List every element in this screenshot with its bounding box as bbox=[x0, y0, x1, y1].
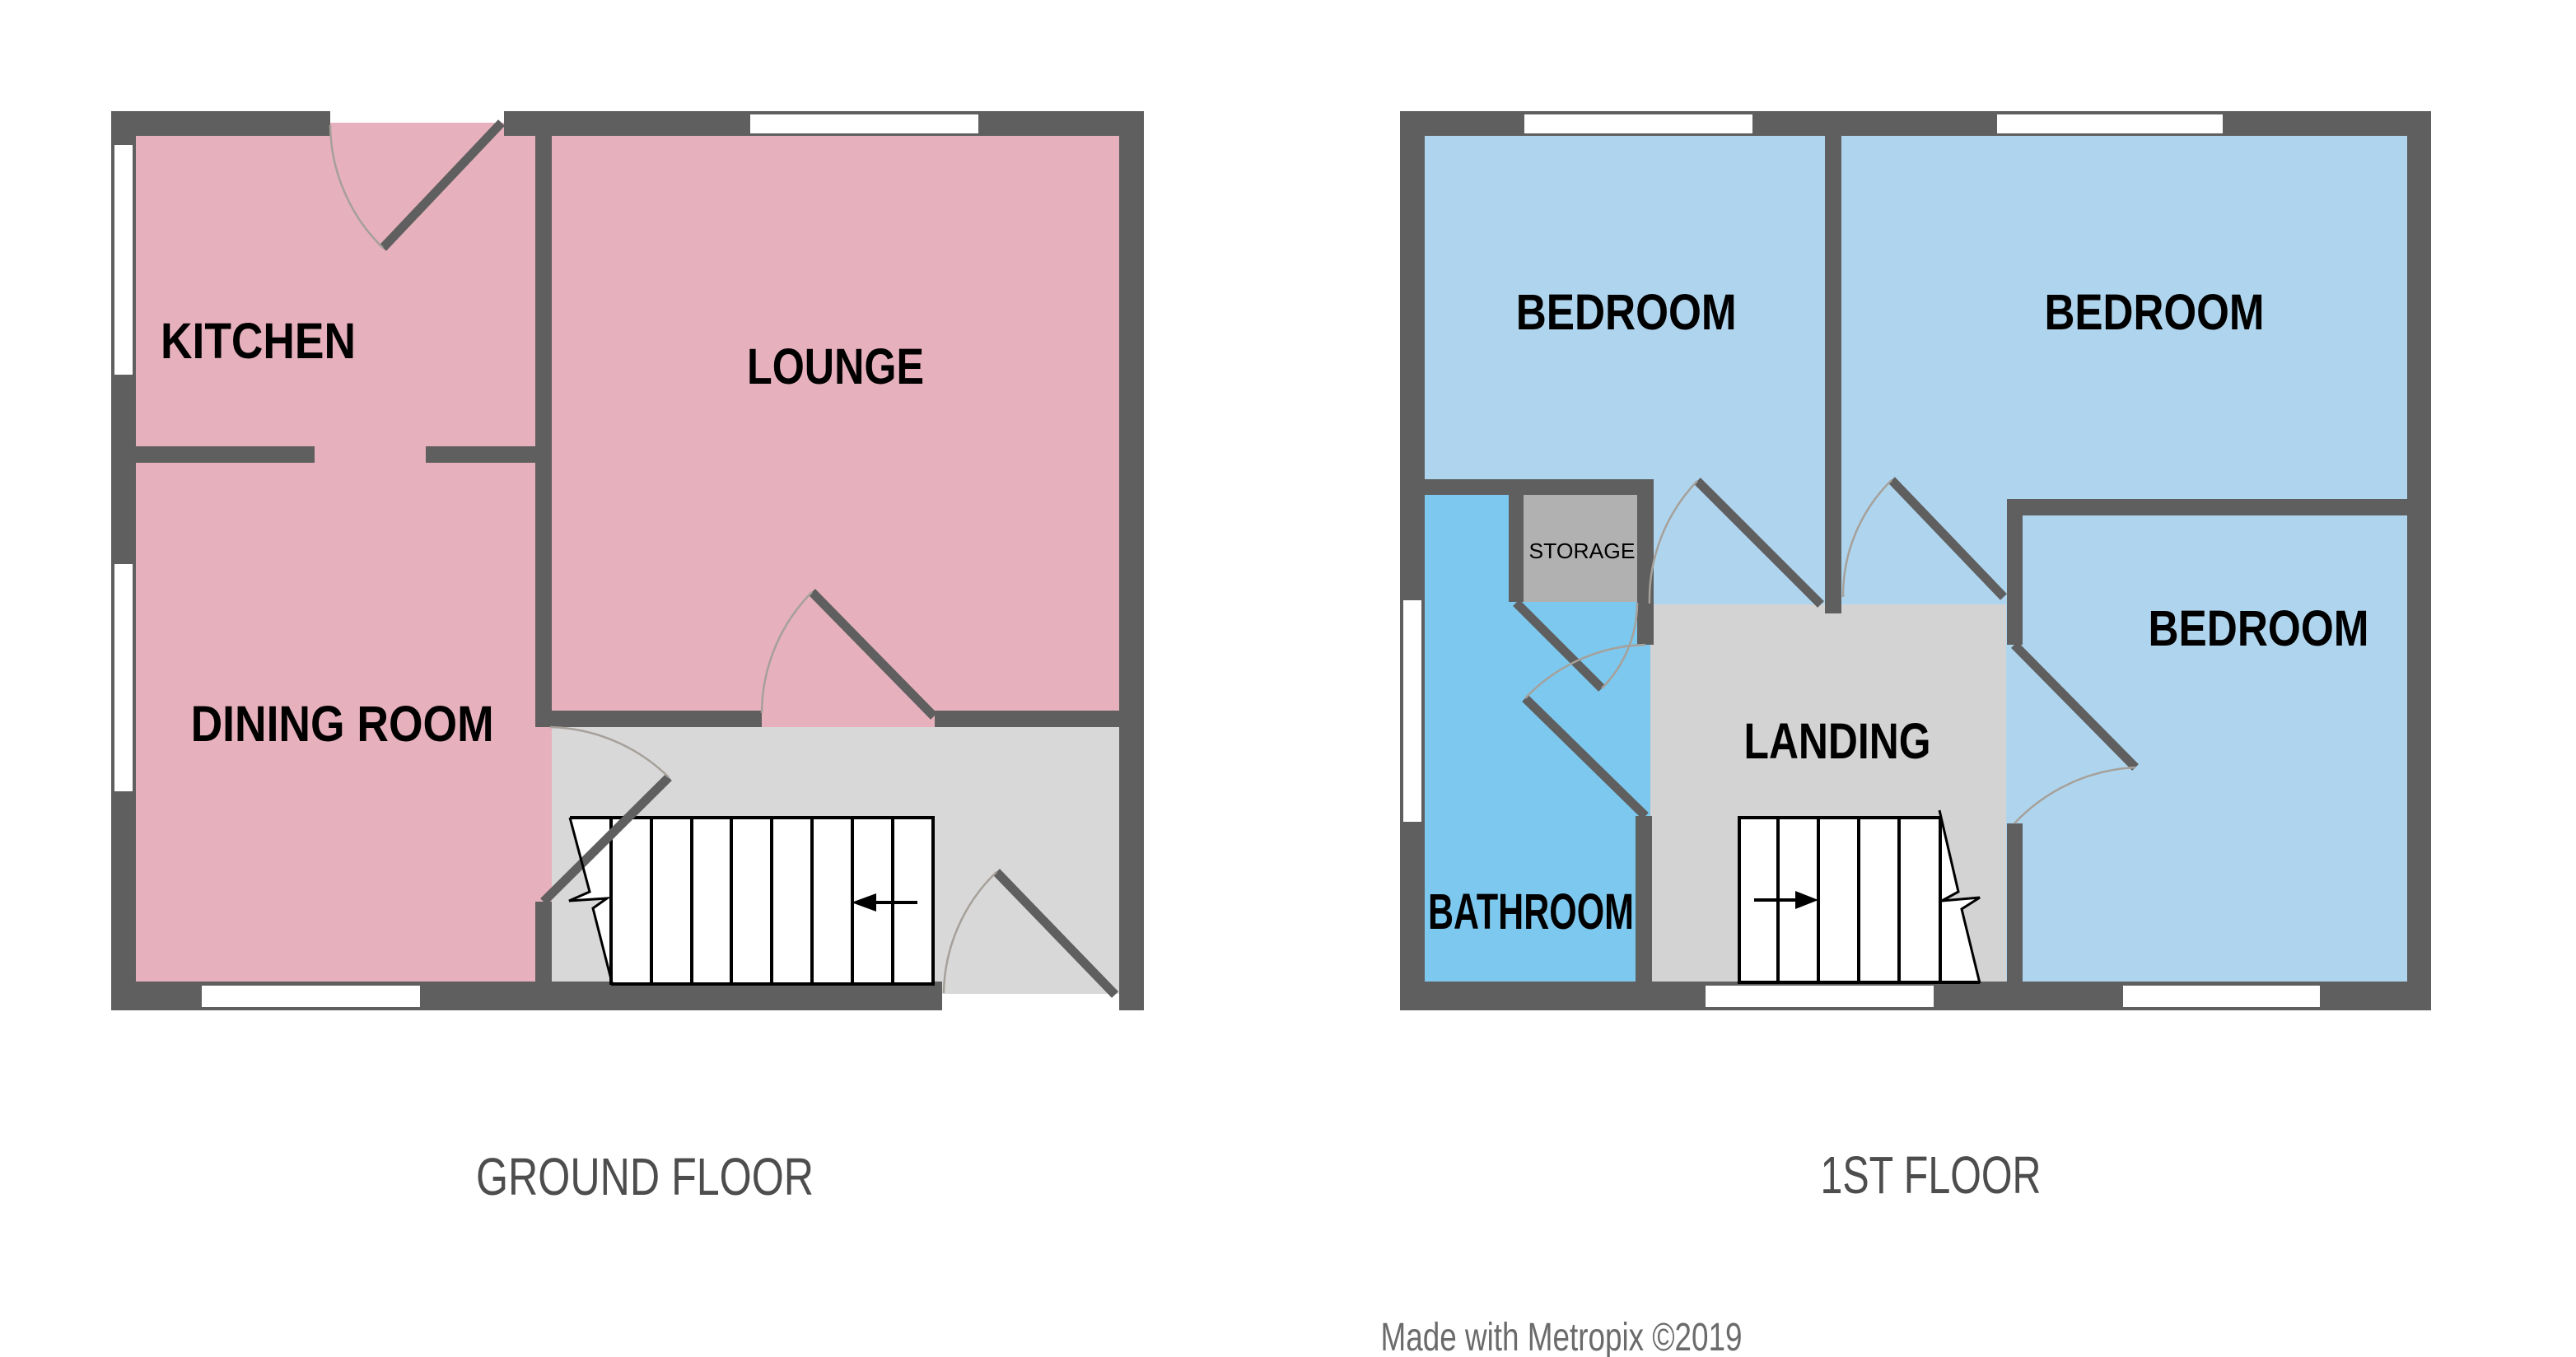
svg-text:BEDROOM: BEDROOM bbox=[1516, 284, 1737, 340]
svg-text:STORAGE: STORAGE bbox=[1529, 539, 1636, 563]
svg-text:LOUNGE: LOUNGE bbox=[747, 338, 924, 394]
svg-text:BATHROOM: BATHROOM bbox=[1428, 884, 1634, 940]
svg-text:GROUND FLOOR: GROUND FLOOR bbox=[476, 1147, 814, 1206]
svg-text:Made with Metropix ©2019: Made with Metropix ©2019 bbox=[1381, 1316, 1743, 1357]
svg-text:BEDROOM: BEDROOM bbox=[2149, 600, 2369, 656]
svg-text:DINING ROOM: DINING ROOM bbox=[191, 696, 494, 752]
svg-text:LANDING: LANDING bbox=[1744, 713, 1931, 769]
svg-text:BEDROOM: BEDROOM bbox=[2045, 284, 2265, 340]
svg-text:KITCHEN: KITCHEN bbox=[161, 313, 356, 369]
svg-text:1ST FLOOR: 1ST FLOOR bbox=[1821, 1145, 2042, 1205]
